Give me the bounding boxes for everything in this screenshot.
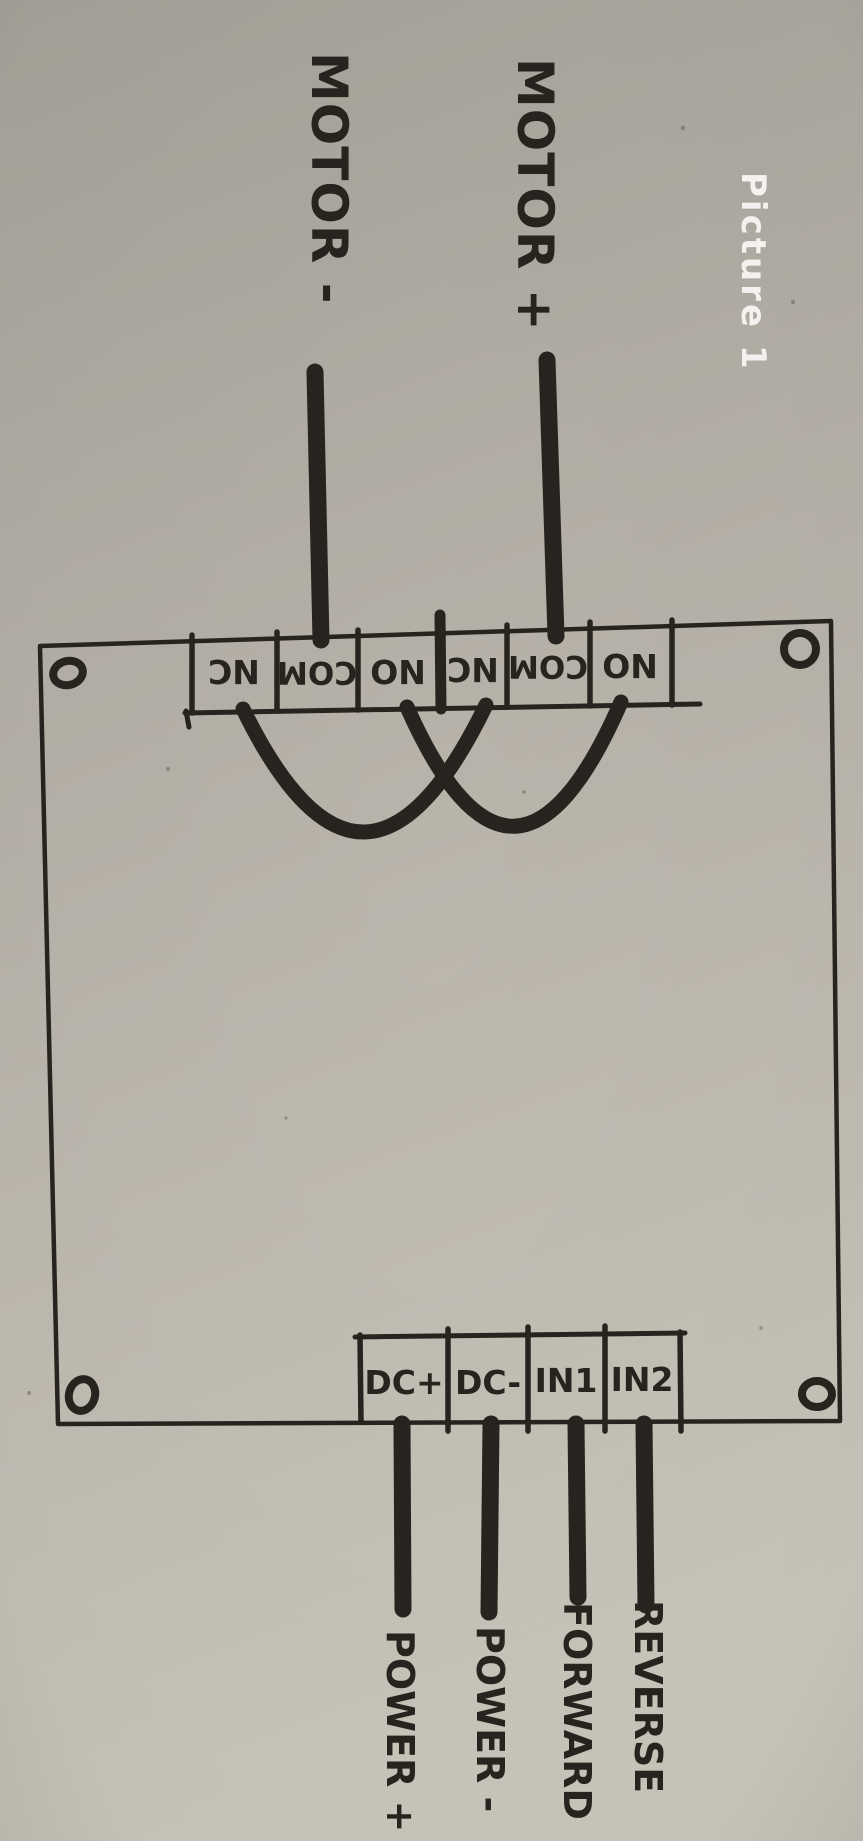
power-minus-label: POWER - [468, 1626, 512, 1812]
motor-plus-wire [547, 360, 556, 636]
input-terminal-label: DC+ [364, 1363, 443, 1402]
relay-terminal-label: NO [370, 652, 426, 691]
input-strip-left-edge [360, 1335, 361, 1422]
reverse-label: REVERSE [626, 1600, 670, 1793]
relay-terminal-label: COM [508, 648, 588, 684]
picture-caption: Picture 1 [733, 172, 773, 372]
relay-terminal-label: NO [602, 646, 658, 685]
input-terminal-label: DC- [455, 1363, 521, 1402]
relay-strip-center-divider [440, 615, 441, 709]
forward-wire [576, 1424, 578, 1597]
relay-terminal-label: NC [447, 650, 499, 689]
input-strip-right-edge [680, 1332, 681, 1431]
relay-strip-left-tick [186, 711, 189, 727]
input-terminal-label: IN2 [611, 1360, 674, 1399]
motor-plus-label: MOTOR + [506, 58, 564, 332]
reverse-wire [644, 1424, 646, 1605]
relay-terminal-label: NC [208, 652, 260, 691]
forward-label: FORWARD [555, 1602, 599, 1820]
power-plus-wire [402, 1424, 403, 1609]
input-terminal-label: IN1 [535, 1361, 598, 1400]
wiring-diagram: MOTOR - MOTOR + NC COM NO NC COM NO DC+ … [0, 0, 863, 1841]
motor-minus-label: MOTOR - [300, 52, 358, 305]
motor-minus-wire [315, 372, 321, 640]
relay-terminal-label: COM [277, 654, 357, 690]
photo-of-sketch: MOTOR - MOTOR + NC COM NO NC COM NO DC+ … [0, 0, 863, 1841]
power-plus-label: POWER + [378, 1630, 422, 1832]
power-minus-wire [489, 1424, 491, 1612]
